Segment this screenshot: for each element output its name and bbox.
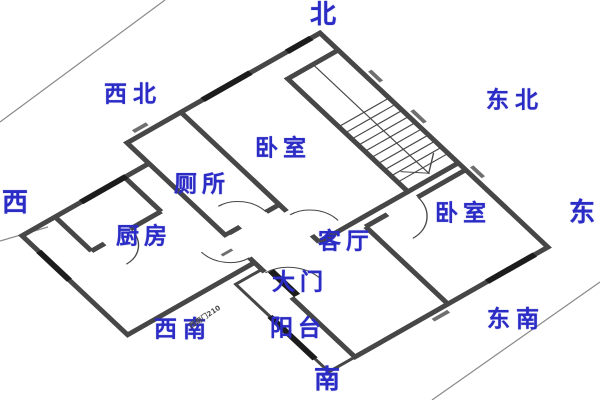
room-label-kitchen: 厨房	[116, 226, 172, 249]
compass-label-west: 西	[2, 190, 28, 216]
compass-label-northeast: 东北	[486, 90, 544, 113]
room-label-toilet: 厕所	[174, 174, 230, 197]
compass-label-northwest: 西北	[104, 84, 162, 107]
dimension-smudge	[221, 248, 234, 256]
bedroom-north-window-bar	[201, 71, 253, 102]
room-label-bedroom-north: 卧室	[255, 138, 311, 161]
room-label-living-room: 客厅	[318, 231, 374, 254]
kitchen-door-opening	[223, 235, 253, 260]
compass-label-southeast: 东南	[487, 309, 545, 332]
room-label-balcony: 阳台	[270, 318, 326, 341]
kitchen-window-bar	[36, 250, 72, 282]
compass-label-north: 北	[310, 2, 336, 28]
compass-label-south: 南	[314, 367, 340, 393]
room-label-main-door: 大门	[272, 272, 328, 295]
compass-label-east: 东	[569, 200, 595, 226]
room-label-bedroom-east: 卧室	[435, 203, 491, 226]
bedroom-east-window-bar	[485, 252, 537, 283]
small-room-window-bar	[79, 174, 129, 204]
floor-plan-canvas: 北 西北 东北 西 东 西南 东南 南 卧室 厕所 厨房 客厅 卧室 大门 阳台…	[0, 0, 600, 400]
stairwell-window-bar	[285, 36, 314, 54]
